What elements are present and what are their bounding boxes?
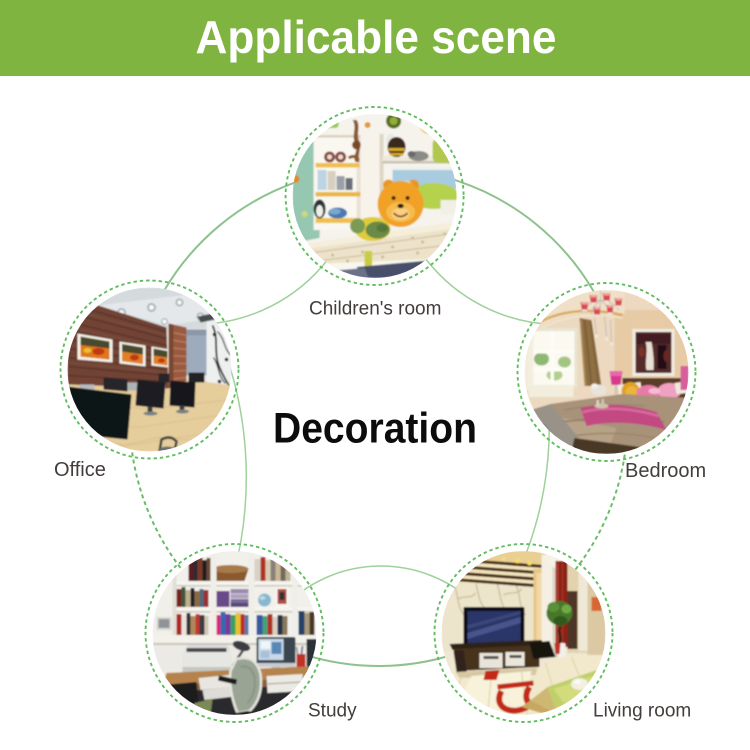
svg-text:Bedroom: Bedroom	[625, 460, 706, 482]
svg-text:Children's room: Children's room	[309, 299, 441, 320]
svg-text:Living room: Living room	[593, 701, 691, 722]
svg-text:Decoration: Decoration	[273, 406, 477, 453]
svg-text:Applicable scene: Applicable scene	[196, 11, 557, 63]
svg-text:Study: Study	[308, 701, 357, 722]
svg-text:Office: Office	[54, 459, 106, 481]
